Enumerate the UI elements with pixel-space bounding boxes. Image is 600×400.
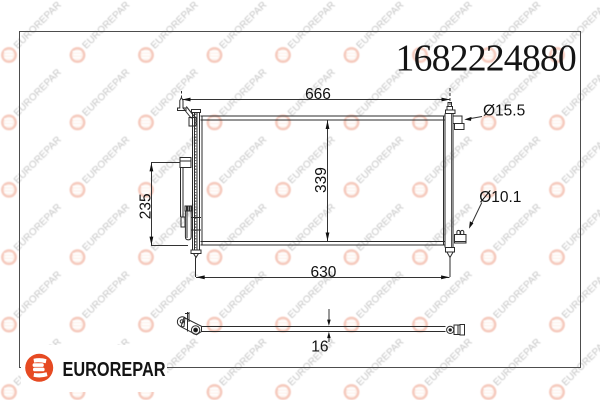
svg-text:666: 666 xyxy=(305,86,331,103)
svg-text:Ø10.1: Ø10.1 xyxy=(479,189,521,206)
svg-text:235: 235 xyxy=(138,193,155,219)
svg-text:339: 339 xyxy=(313,167,330,193)
svg-text:16: 16 xyxy=(311,339,328,356)
svg-text:1682224880: 1682224880 xyxy=(396,38,577,80)
svg-text:Ø15.5: Ø15.5 xyxy=(483,103,525,120)
svg-text:630: 630 xyxy=(310,264,336,281)
svg-text:EUROREPAR: EUROREPAR xyxy=(63,359,166,381)
